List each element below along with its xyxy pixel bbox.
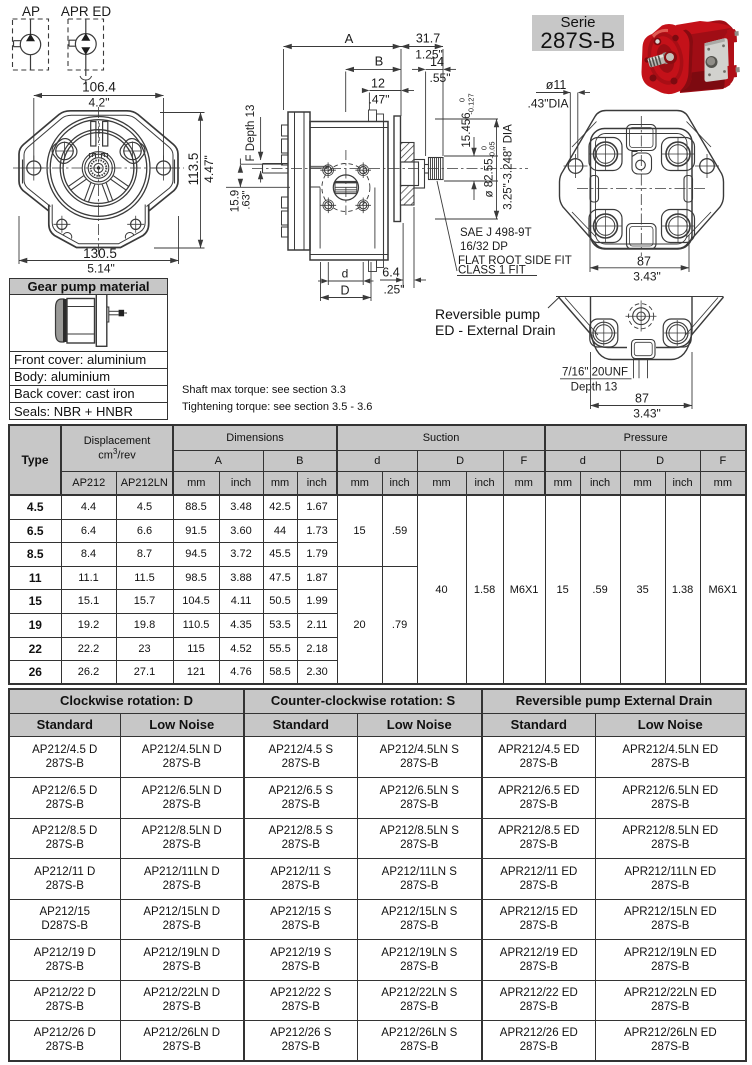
svg-text:14: 14 (430, 55, 444, 69)
svg-text:15.456: 15.456 (461, 112, 473, 147)
svg-text:4.47": 4.47" (202, 155, 216, 183)
svg-text:.43"DIA: .43"DIA (528, 97, 569, 111)
svg-text:CLASS 1 FIT: CLASS 1 FIT (458, 265, 526, 277)
svg-text:d: d (342, 267, 349, 281)
svg-text:-0.127: -0.127 (466, 93, 475, 114)
svg-text:B: B (375, 54, 384, 69)
svg-text:ø11: ø11 (546, 78, 567, 92)
svg-text:AP: AP (22, 4, 40, 19)
svg-text:106.4: 106.4 (82, 80, 116, 95)
svg-text:5.14": 5.14" (87, 262, 115, 276)
svg-text:SAE J 498-9T: SAE J 498-9T (460, 227, 532, 239)
svg-text:D: D (340, 284, 349, 298)
svg-text:31.7: 31.7 (416, 32, 440, 46)
svg-text:12: 12 (371, 77, 385, 91)
svg-text:.55": .55" (430, 71, 451, 85)
svg-text:130.5: 130.5 (83, 246, 117, 261)
svg-text:0: 0 (457, 98, 466, 102)
svg-text:.47": .47" (369, 93, 390, 107)
svg-text:-0.05: -0.05 (487, 141, 496, 158)
svg-text:F Depth 13: F Depth 13 (245, 105, 257, 162)
svg-text:3.43": 3.43" (633, 270, 661, 284)
svg-text:87: 87 (635, 392, 649, 406)
svg-text:ø 82.55: ø 82.55 (484, 159, 496, 198)
svg-text:4.2": 4.2" (89, 96, 110, 110)
svg-text:16/32 DP: 16/32 DP (460, 241, 508, 253)
svg-text:87: 87 (637, 255, 651, 269)
svg-text:6.4: 6.4 (382, 266, 399, 280)
svg-text:.25": .25" (384, 283, 405, 297)
svg-text:APR ED: APR ED (61, 4, 112, 19)
svg-text:A: A (345, 31, 354, 46)
svg-text:3.43": 3.43" (633, 407, 661, 421)
svg-text:7/16" 20UNF: 7/16" 20UNF (562, 367, 628, 379)
svg-text:113.5: 113.5 (186, 153, 201, 186)
svg-text:3.25"-3.248" DIA: 3.25"-3.248" DIA (503, 124, 515, 210)
svg-text:Depth 13: Depth 13 (571, 382, 618, 394)
svg-text:.63": .63" (240, 190, 252, 209)
